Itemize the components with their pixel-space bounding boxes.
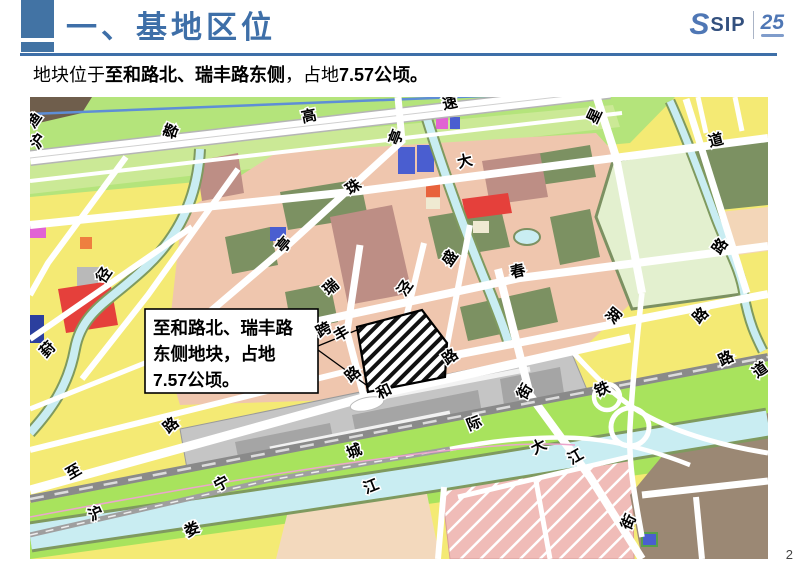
callout-line-2: 东侧地块，占地 (153, 344, 276, 364)
anniversary-number: 25 (761, 11, 784, 34)
intro-area: 7.57公顷。 (339, 65, 428, 85)
callout-line-1: 至和路北、瑞丰路 (153, 318, 293, 338)
callout-line-3: 7.57公顷。 (153, 370, 240, 390)
intro-mid: ，占地 (285, 65, 339, 85)
header-rule (20, 53, 777, 56)
callout-box: 至和路北、瑞丰路 东侧地块，占地 7.57公顷。 (145, 309, 318, 393)
intro-prefix: 地块位于 (33, 65, 105, 85)
anniversary-mark: 25 (761, 13, 784, 37)
intro-text: 地块位于至和路北、瑞丰路东侧，占地7.57公顷。 (33, 61, 428, 87)
sip-logo: S SIP 25 (689, 8, 784, 42)
header-accent-square (21, 0, 54, 38)
location-map: 至和路北、瑞丰路 东侧地块，占地 7.57公顷。 渔沪蓉高速亭星大道珠径亭盛春瑞… (30, 97, 768, 559)
anniversary-swoosh-icon (761, 34, 784, 37)
intro-location: 至和路北、瑞丰路东侧 (105, 65, 285, 85)
page-title: 一、基地区位 (66, 2, 276, 47)
slide: 一、基地区位 S SIP 25 地块位于至和路北、瑞丰路东侧，占地7.57公顷。 (0, 0, 800, 565)
logo-divider (753, 11, 754, 39)
sip-logo-text: SIP (710, 14, 745, 37)
page-number: 2 (786, 547, 793, 562)
sip-s-icon: S (689, 10, 709, 40)
header-accent-bar (21, 42, 54, 52)
map-wrap: 至和路北、瑞丰路 东侧地块，占地 7.57公顷。 渔沪蓉高速亭星大道珠径亭盛春瑞… (30, 97, 768, 559)
